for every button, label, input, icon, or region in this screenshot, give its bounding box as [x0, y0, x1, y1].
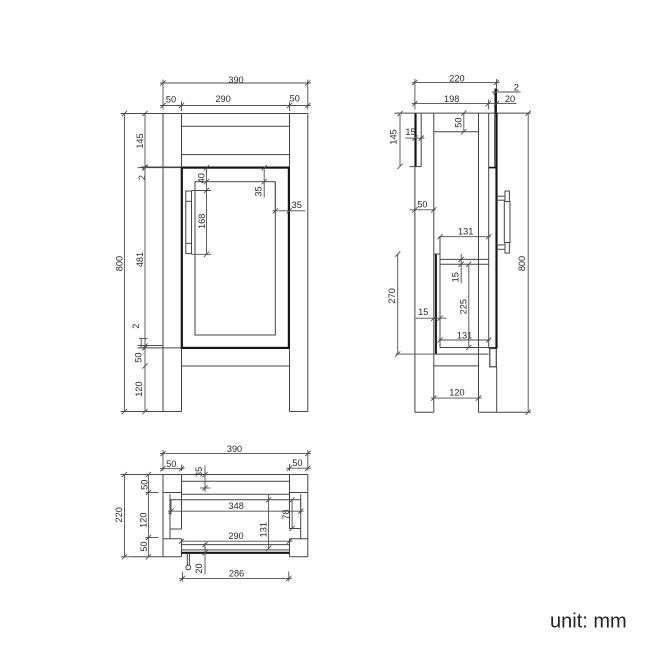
svg-text:131: 131	[457, 331, 472, 341]
svg-text:120: 120	[134, 381, 144, 396]
svg-text:198: 198	[444, 94, 459, 104]
svg-text:290: 290	[215, 94, 230, 104]
svg-text:50: 50	[134, 352, 144, 362]
svg-text:50: 50	[139, 541, 149, 551]
svg-text:unit: mm: unit: mm	[550, 611, 627, 633]
svg-text:35: 35	[253, 186, 263, 196]
svg-text:35: 35	[292, 200, 302, 210]
svg-text:50: 50	[417, 199, 427, 209]
svg-text:15: 15	[418, 307, 428, 317]
svg-text:220: 220	[449, 74, 464, 84]
svg-text:120: 120	[139, 513, 149, 528]
svg-text:50: 50	[292, 458, 302, 468]
svg-text:290: 290	[228, 531, 243, 541]
svg-text:50: 50	[166, 94, 176, 104]
svg-text:120: 120	[449, 387, 464, 397]
svg-text:481: 481	[135, 252, 145, 267]
svg-text:220: 220	[114, 507, 124, 522]
svg-text:2: 2	[514, 82, 519, 92]
svg-text:270: 270	[387, 288, 397, 303]
svg-text:50: 50	[453, 117, 463, 127]
svg-text:2: 2	[137, 175, 147, 180]
svg-text:50: 50	[290, 94, 300, 104]
svg-text:50: 50	[139, 480, 149, 490]
svg-text:800: 800	[517, 256, 527, 271]
svg-text:20: 20	[194, 563, 204, 573]
svg-text:15: 15	[405, 127, 415, 137]
svg-text:225: 225	[458, 299, 468, 314]
svg-text:78: 78	[281, 509, 291, 519]
svg-text:348: 348	[229, 501, 244, 511]
svg-text:145: 145	[389, 129, 399, 144]
svg-text:390: 390	[228, 75, 243, 85]
svg-text:15: 15	[451, 272, 461, 282]
svg-text:800: 800	[115, 256, 125, 271]
svg-text:35: 35	[194, 467, 204, 477]
svg-text:40: 40	[196, 173, 206, 183]
svg-text:50: 50	[166, 459, 176, 469]
svg-text:168: 168	[197, 214, 207, 229]
svg-text:390: 390	[227, 444, 242, 454]
svg-text:131: 131	[458, 226, 473, 236]
svg-text:2: 2	[131, 324, 141, 329]
svg-text:286: 286	[229, 569, 244, 579]
svg-text:145: 145	[135, 133, 145, 148]
svg-text:131: 131	[259, 522, 269, 537]
svg-text:20: 20	[505, 94, 515, 104]
